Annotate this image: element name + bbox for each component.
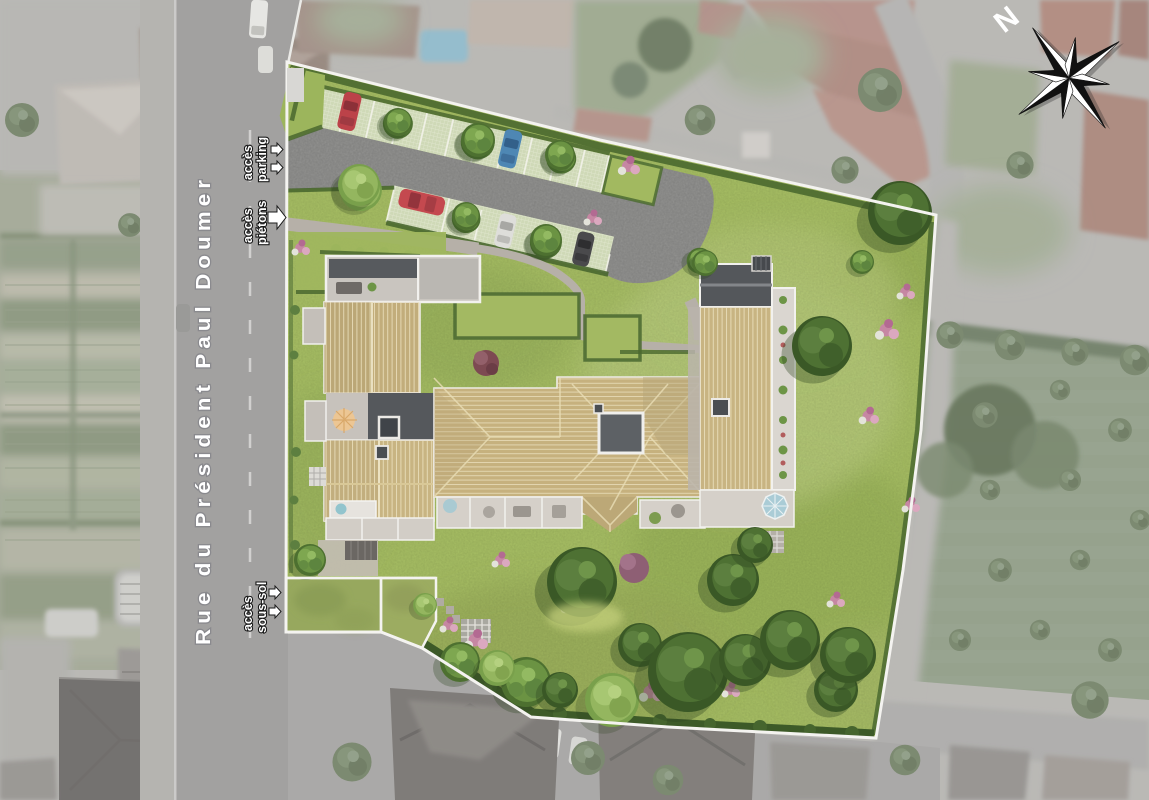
svg-text:Rue du Président Paul Doumer: Rue du Président Paul Doumer	[193, 175, 215, 645]
svg-text:accès: accès	[241, 208, 255, 243]
svg-text:accès: accès	[241, 145, 255, 180]
svg-text:accès: accès	[241, 596, 255, 631]
svg-text:piétons: piétons	[255, 201, 269, 245]
svg-text:parking: parking	[255, 137, 269, 182]
svg-text:sous-sol: sous-sol	[255, 582, 269, 633]
